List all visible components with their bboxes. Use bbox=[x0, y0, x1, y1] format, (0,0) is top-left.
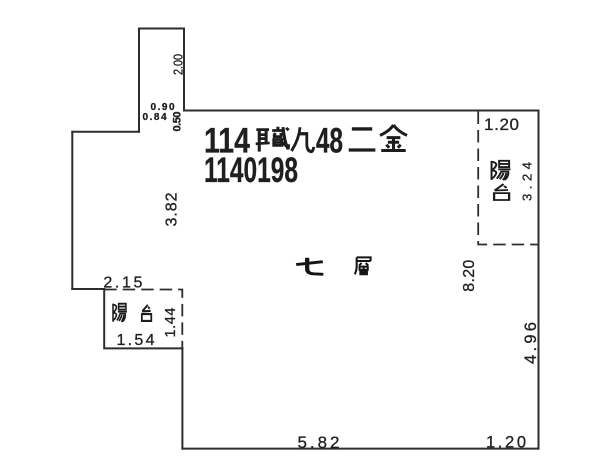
svg-text:0.50: 0.50 bbox=[172, 112, 184, 132]
svg-text:1140198: 1140198 bbox=[204, 151, 298, 190]
svg-text:1.54: 1.54 bbox=[117, 332, 155, 349]
svg-text:1.44: 1.44 bbox=[163, 308, 179, 338]
svg-text:3.82: 3.82 bbox=[164, 192, 181, 226]
svg-text:1.20: 1.20 bbox=[486, 434, 526, 452]
svg-text:5.82: 5.82 bbox=[298, 433, 340, 452]
svg-text:8.20: 8.20 bbox=[461, 260, 478, 292]
svg-text:1.20: 1.20 bbox=[484, 115, 519, 134]
svg-text:3.24: 3.24 bbox=[520, 162, 535, 201]
svg-text:48: 48 bbox=[316, 122, 343, 161]
svg-text:2.15: 2.15 bbox=[103, 275, 142, 292]
svg-text:0.84: 0.84 bbox=[143, 112, 167, 123]
svg-text:4.96: 4.96 bbox=[522, 322, 540, 364]
svg-text:2.00: 2.00 bbox=[171, 54, 186, 75]
